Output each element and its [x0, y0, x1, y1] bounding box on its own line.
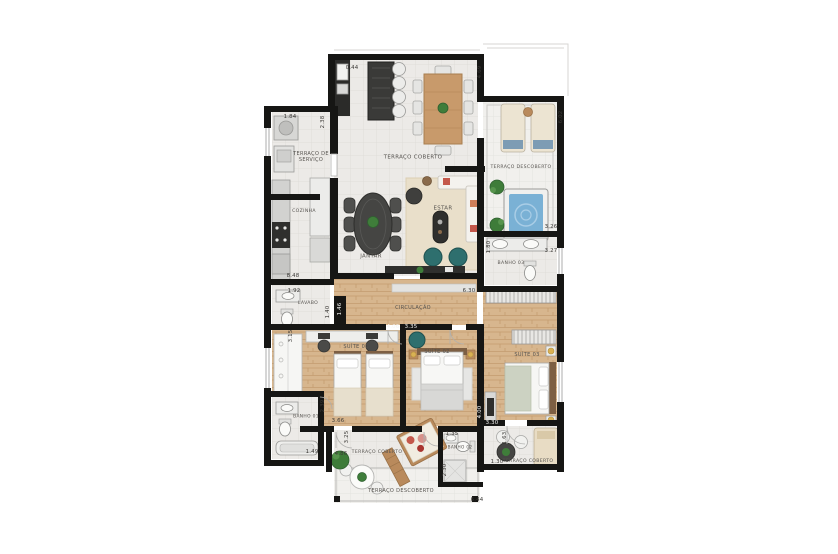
room-label-jantar: JANTAR	[360, 254, 382, 261]
room-label-lavabo: LAVABO	[298, 301, 318, 307]
dimension-label: 4.86	[335, 451, 348, 457]
dimension-label: 1.30	[491, 459, 504, 465]
dimension-label: 1.35	[446, 431, 459, 437]
dimension-label: 3.25	[344, 431, 350, 444]
dimension-label: 1.49	[306, 449, 319, 455]
room-label-cozinha: COZINHA	[292, 209, 316, 215]
dimension-label: 1.63	[502, 432, 508, 445]
room-label-terraco-coberto-inferior: TERRAÇO COBERTO	[352, 450, 403, 456]
dimension-label: 4.69	[477, 66, 483, 79]
dimension-label: 1.80	[486, 241, 492, 254]
dimension-label: 8.48	[287, 273, 300, 279]
dimension-label: 4.00	[477, 406, 483, 419]
dimension-label: 6.30	[463, 288, 476, 294]
room-label-terraco-coberto-direito: TERRAÇO COBERTO	[503, 459, 554, 465]
dimension-label: 3.35	[405, 324, 418, 330]
dimension-label: 1.46	[337, 303, 343, 316]
suite-01-window	[264, 348, 271, 388]
floor-plan-canvas: TERRAÇO DE SERVIÇOCOZINHATERRAÇO COBERTO…	[0, 0, 838, 554]
dimension-label: 3.30	[486, 420, 499, 426]
room-label-circulacao: CIRCULAÇÃO	[395, 305, 431, 311]
dimension-label: 1.40	[325, 306, 331, 319]
dimension-label: 2.38	[320, 116, 326, 129]
room-label-suite-01: SUÍTE 01	[343, 344, 368, 350]
room-label-terraco-descoberto-superior: TERRAÇO DESCOBERTO	[490, 165, 551, 171]
room-label-banho-03: BANHO 03	[498, 261, 525, 267]
dimension-label: 4.06	[387, 324, 400, 330]
room-label-banho-02: BANHO 02	[448, 444, 473, 449]
room-label-banho-01: BANHO 01	[293, 414, 319, 420]
dimension-label: 6.02	[558, 111, 564, 124]
dimension-label: 1.84	[284, 114, 297, 120]
service-window	[264, 128, 271, 156]
bath-03-window	[557, 248, 564, 274]
room-label-suite-03: SUÍTE 03	[514, 352, 539, 358]
dimension-label: 3.66	[332, 418, 345, 424]
room-label-terraco-descoberto-inferior: TERRAÇO DESCOBERTO	[368, 488, 434, 494]
dimension-label: 2.30	[442, 464, 448, 477]
room-label-suite-02: SUÍTE 02	[424, 349, 449, 355]
room-label-terraco-de-servico: TERRAÇO DE SERVIÇO	[288, 151, 334, 164]
dimension-label: 0.44	[346, 65, 359, 71]
dimension-label: 1.92	[288, 288, 301, 294]
room-label-terraco-coberto-superior: TERRAÇO COBERTO	[384, 155, 443, 162]
dimension-label: 2.39	[320, 400, 326, 413]
floor-plan-drawing	[0, 0, 838, 554]
room-label-estar: ESTAR	[434, 206, 453, 213]
dimension-label: 3.15	[288, 330, 294, 343]
dimension-label: 3.27	[545, 248, 558, 254]
dimension-label: 6.44	[471, 497, 484, 503]
dimension-label: 3.26	[545, 224, 558, 230]
suite-03-window	[557, 362, 564, 402]
